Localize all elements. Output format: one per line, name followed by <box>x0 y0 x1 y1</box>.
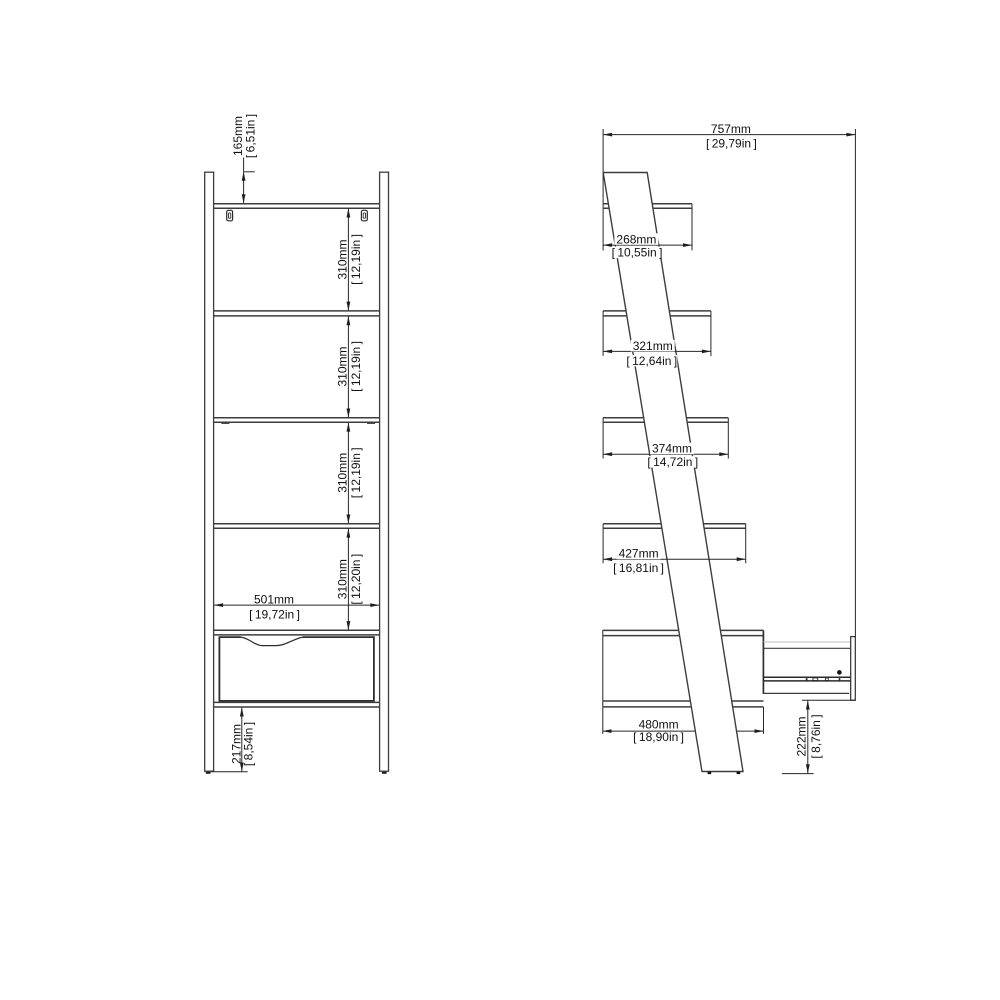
svg-text:[ 29,79in ]: [ 29,79in ] <box>706 137 757 151</box>
svg-text:[ 6,51in ]: [ 6,51in ] <box>243 114 257 158</box>
svg-text:[ 12,19in ]: [ 12,19in ] <box>349 234 363 285</box>
svg-text:222mm: 222mm <box>795 716 809 756</box>
svg-text:[ 14,72in ]: [ 14,72in ] <box>647 455 698 469</box>
svg-text:321mm: 321mm <box>633 339 673 353</box>
svg-text:[ 12,20in ]: [ 12,20in ] <box>349 554 363 605</box>
svg-text:757mm: 757mm <box>711 122 751 136</box>
svg-text:[ 16,81in ]: [ 16,81in ] <box>613 561 664 575</box>
svg-text:374mm: 374mm <box>652 442 692 456</box>
svg-text:[ 19,72in ]: [ 19,72in ] <box>249 607 300 621</box>
svg-text:268mm: 268mm <box>616 232 656 246</box>
svg-text:310mm: 310mm <box>335 453 349 493</box>
svg-text:310mm: 310mm <box>335 559 349 599</box>
svg-text:501mm: 501mm <box>254 593 294 607</box>
svg-text:[ 8,54in ]: [ 8,54in ] <box>242 722 256 766</box>
svg-text:427mm: 427mm <box>619 547 659 561</box>
svg-text:[ 10,55in ]: [ 10,55in ] <box>612 246 663 260</box>
svg-text:310mm: 310mm <box>335 239 349 279</box>
svg-text:310mm: 310mm <box>335 346 349 386</box>
svg-text:[ 12,64in ]: [ 12,64in ] <box>626 354 677 368</box>
svg-text:[ 8,76in ]: [ 8,76in ] <box>809 714 823 758</box>
svg-text:[ 18,90in ]: [ 18,90in ] <box>633 730 684 744</box>
svg-text:[ 12,19in ]: [ 12,19in ] <box>349 341 363 392</box>
svg-text:[ 12,19in ]: [ 12,19in ] <box>349 447 363 498</box>
